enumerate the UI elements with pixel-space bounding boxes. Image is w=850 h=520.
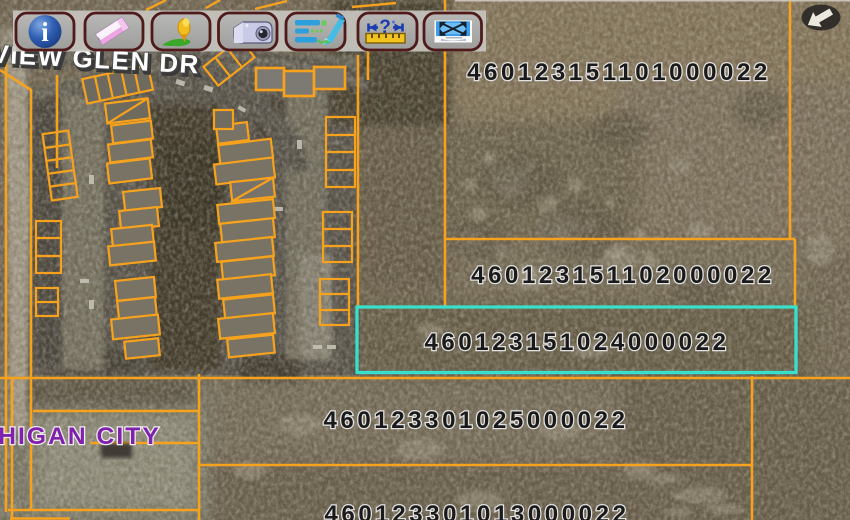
svg-text:MICHIGAN CITY: MICHIGAN CITY — [0, 423, 161, 450]
svg-text:460123151101000022: 460123151101000022 — [467, 59, 771, 86]
svg-text:460123151102000022: 460123151102000022 — [471, 262, 775, 289]
svg-text:460123301025000022: 460123301025000022 — [323, 407, 628, 434]
svg-text:460123301013000022: 460123301013000022 — [324, 501, 629, 520]
svg-text:i: i — [41, 17, 49, 47]
svg-text:460123151024000022: 460123151024000022 — [424, 329, 729, 356]
